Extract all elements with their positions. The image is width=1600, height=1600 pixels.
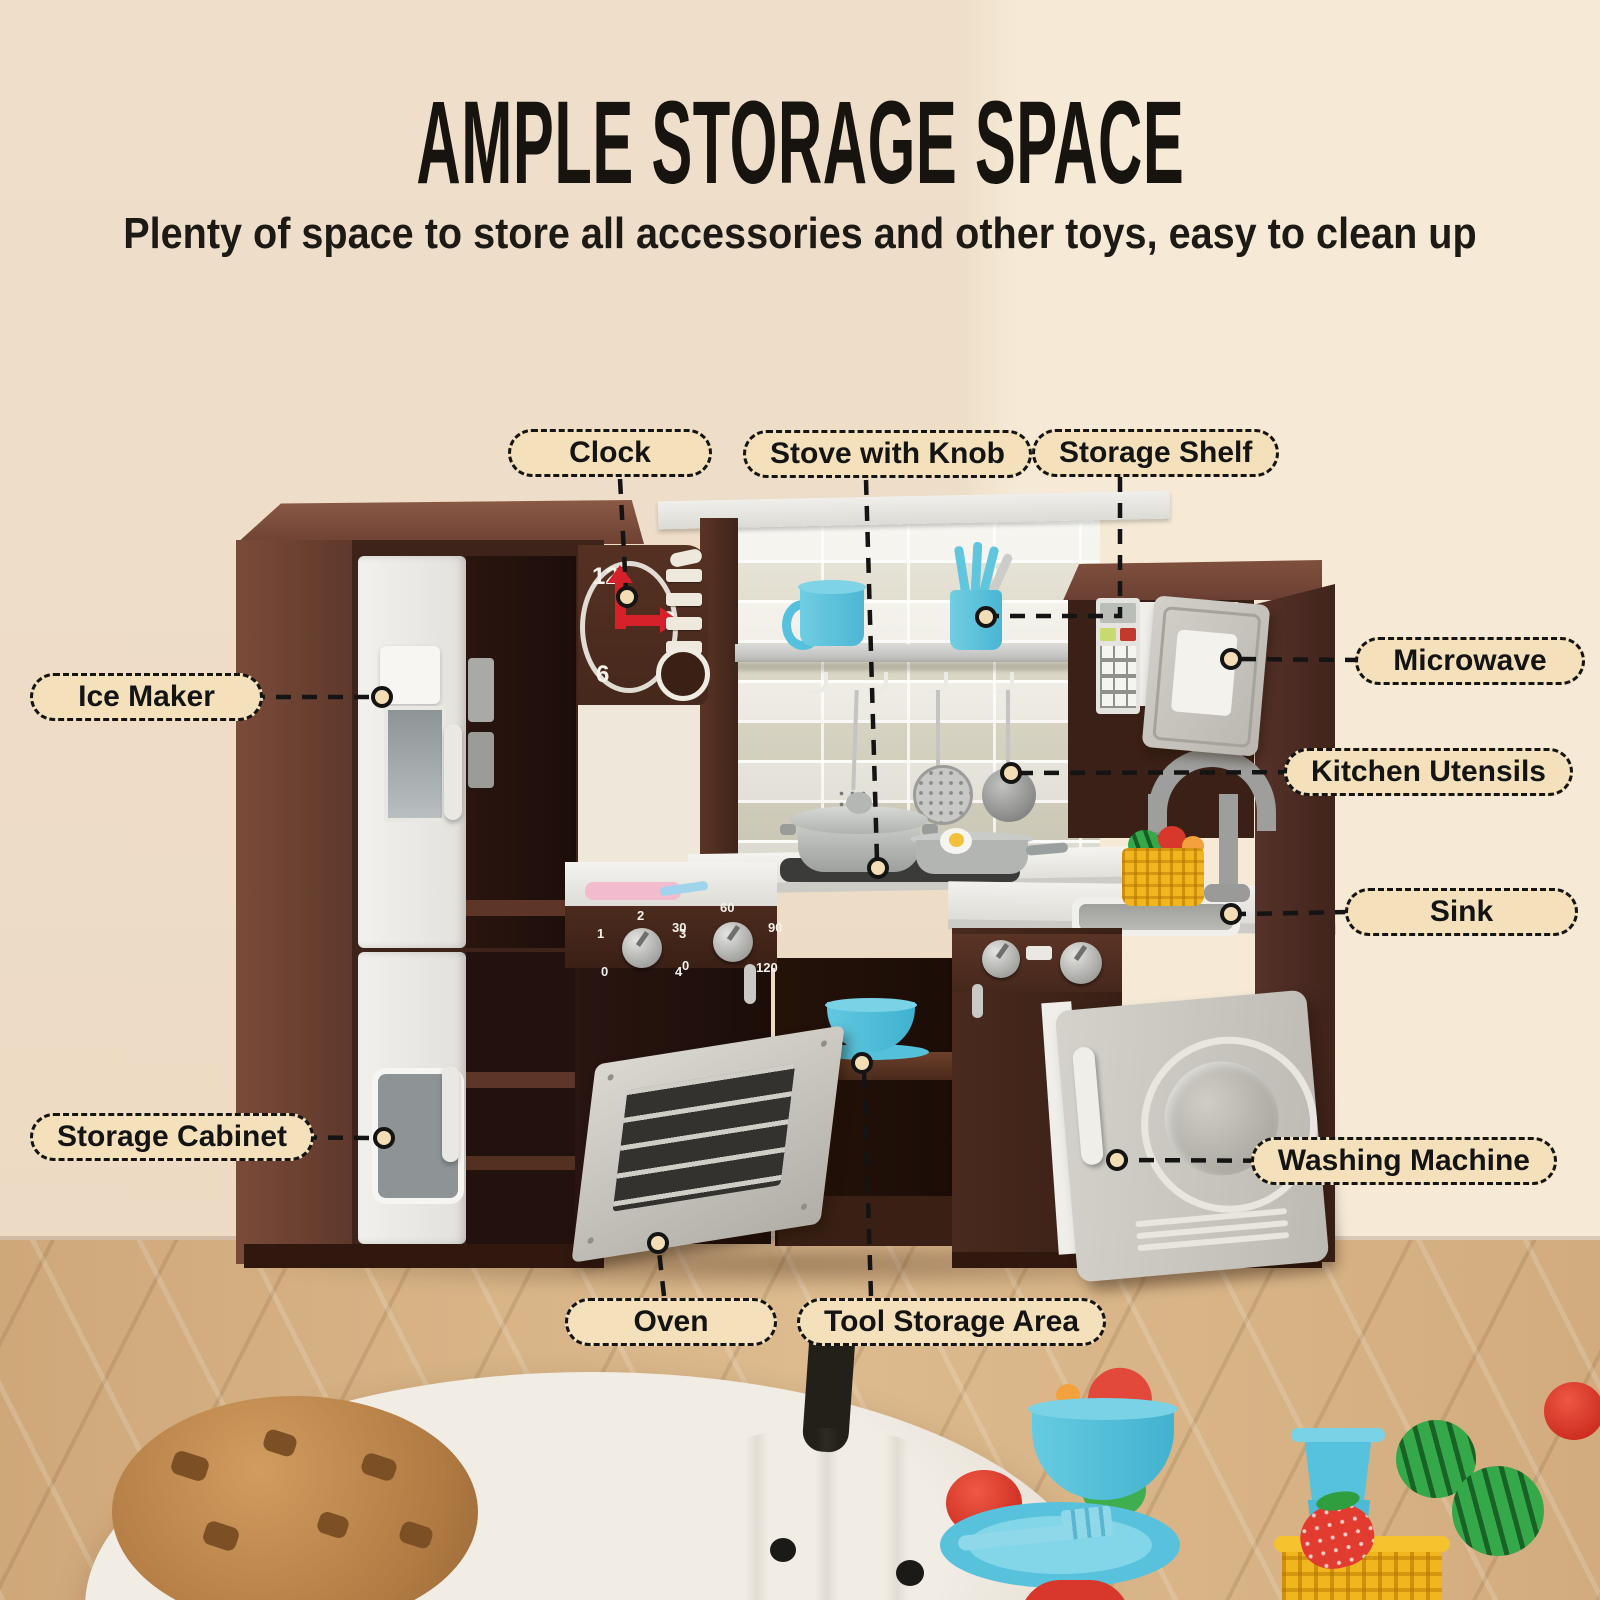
ice-dispenser-recess — [384, 706, 446, 822]
upper-compartment-shelf — [466, 900, 576, 916]
callout-oven: Oven — [565, 1298, 777, 1346]
toy-egg-yolk — [949, 833, 964, 847]
screw — [587, 1237, 594, 1244]
washer-lock — [972, 984, 983, 1018]
washer-display — [1026, 946, 1052, 960]
callout-microwave: Microwave — [1355, 637, 1585, 685]
callout-storage-cabinet: Storage Cabinet — [30, 1113, 314, 1161]
pumpkin-eye — [770, 1538, 796, 1562]
microwave-start-button — [1100, 628, 1116, 641]
knob-indicator — [996, 943, 1009, 959]
week-tag — [669, 548, 703, 568]
storage-shelf-board — [735, 644, 1097, 662]
callout-washing-machine: Washing Machine — [1251, 1137, 1557, 1185]
callout-tool-storage-area: Tool Storage Area — [797, 1298, 1106, 1346]
dial-number: 2 — [637, 908, 644, 923]
dial-number: 120 — [756, 960, 778, 975]
callout-ice-maker: Ice Maker — [30, 673, 263, 721]
toy-pot-handle — [780, 824, 796, 835]
cabinet-lock — [744, 964, 756, 1004]
ice-maker-door-handle — [444, 724, 462, 820]
faucet-base — [1204, 884, 1250, 902]
timer-dial: 60 30 90 0 120 — [672, 900, 794, 984]
veggie-basket — [1122, 848, 1204, 906]
dial-number: 0 — [601, 964, 608, 979]
page-title: AMPLE STORAGE SPACE — [416, 84, 1184, 202]
clock-hour-hand — [622, 615, 662, 626]
door-latch — [468, 732, 494, 788]
microwave-door-window — [1171, 629, 1238, 716]
screw — [801, 1203, 808, 1210]
washer-knob — [1060, 942, 1102, 984]
ladle-rod — [1006, 690, 1010, 772]
toy-ladle — [982, 768, 1036, 822]
toy-watermelon — [1452, 1466, 1544, 1556]
storage-cabinet-handle — [442, 1066, 459, 1162]
screw — [607, 1074, 614, 1081]
door-latch — [468, 658, 494, 722]
knob-indicator — [727, 925, 740, 941]
callout-storage-shelf: Storage Shelf — [1032, 429, 1279, 477]
timer-knob — [656, 647, 710, 701]
day-tag — [666, 569, 702, 582]
microwave-stop-button — [1120, 628, 1136, 641]
page-subtitle: Plenty of space to store all accessories… — [123, 210, 1477, 258]
utensil-cup — [950, 590, 1002, 650]
callout-clock: Clock — [508, 429, 712, 477]
oven-door-grill-window — [613, 1063, 796, 1211]
toy-tomato — [1544, 1382, 1600, 1440]
lower-open-compartment — [466, 952, 576, 1244]
dial-number: 90 — [768, 920, 782, 935]
callout-kitchen-utensils: Kitchen Utensils — [1284, 748, 1573, 796]
knob-indicator — [1074, 945, 1087, 961]
microwave-keypad — [1096, 598, 1140, 714]
backsplash-return-panel — [578, 700, 706, 866]
dial-number: 30 — [672, 920, 686, 935]
fridge-kick-base — [244, 1244, 604, 1268]
callout-stove-with-knob: Stove with Knob — [743, 430, 1032, 478]
knob-indicator — [636, 931, 649, 947]
sink-basin-inner — [1079, 904, 1233, 930]
microwave-display — [1100, 603, 1136, 623]
subtitle-row: Plenty of space to store all accessories… — [0, 196, 1600, 258]
pumpkin-eye — [896, 1560, 924, 1586]
screw — [821, 1040, 828, 1047]
toy-pan — [916, 840, 1028, 874]
shelf-shadow — [735, 662, 1097, 671]
product-feature-image: 12 3 6 — [0, 0, 1600, 1600]
toy-fork-tines — [1061, 1505, 1114, 1540]
washer-door-handle — [1072, 1046, 1104, 1165]
dial-number: 60 — [720, 900, 734, 915]
washer-knob — [982, 940, 1020, 978]
ice-dispenser-cover — [380, 646, 440, 704]
toy-cup-rim — [1291, 1428, 1385, 1442]
washing-machine-door-open — [1055, 990, 1330, 1283]
callout-sink: Sink — [1345, 888, 1578, 936]
lower-compartment-shelf — [466, 1072, 576, 1088]
microwave-number-pad — [1100, 646, 1136, 708]
microwave-door-open — [1142, 595, 1271, 757]
day-tag — [666, 617, 702, 630]
timer-knob — [713, 922, 753, 962]
dial-number: 1 — [597, 926, 604, 941]
toy-bowl-rim — [825, 998, 917, 1012]
skimmer-rod — [936, 690, 940, 770]
burner-knob — [622, 928, 662, 968]
toy-mug-rim — [798, 580, 866, 594]
dial-number: 0 — [682, 958, 689, 973]
lower-compartment-shelf — [466, 1156, 576, 1170]
microwave-cabinet-top — [1058, 560, 1322, 600]
toy-fruit-bowl-rim — [1028, 1398, 1178, 1420]
clock-number-6: 6 — [596, 661, 609, 689]
toy-pot-lid-knob — [846, 792, 872, 814]
fridge-unit-top — [236, 500, 644, 544]
header: AMPLE STORAGE SPACE — [0, 84, 1600, 202]
faucet-column — [1219, 794, 1238, 892]
day-tag — [666, 593, 702, 606]
clock-panel: 12 3 6 — [578, 545, 708, 705]
